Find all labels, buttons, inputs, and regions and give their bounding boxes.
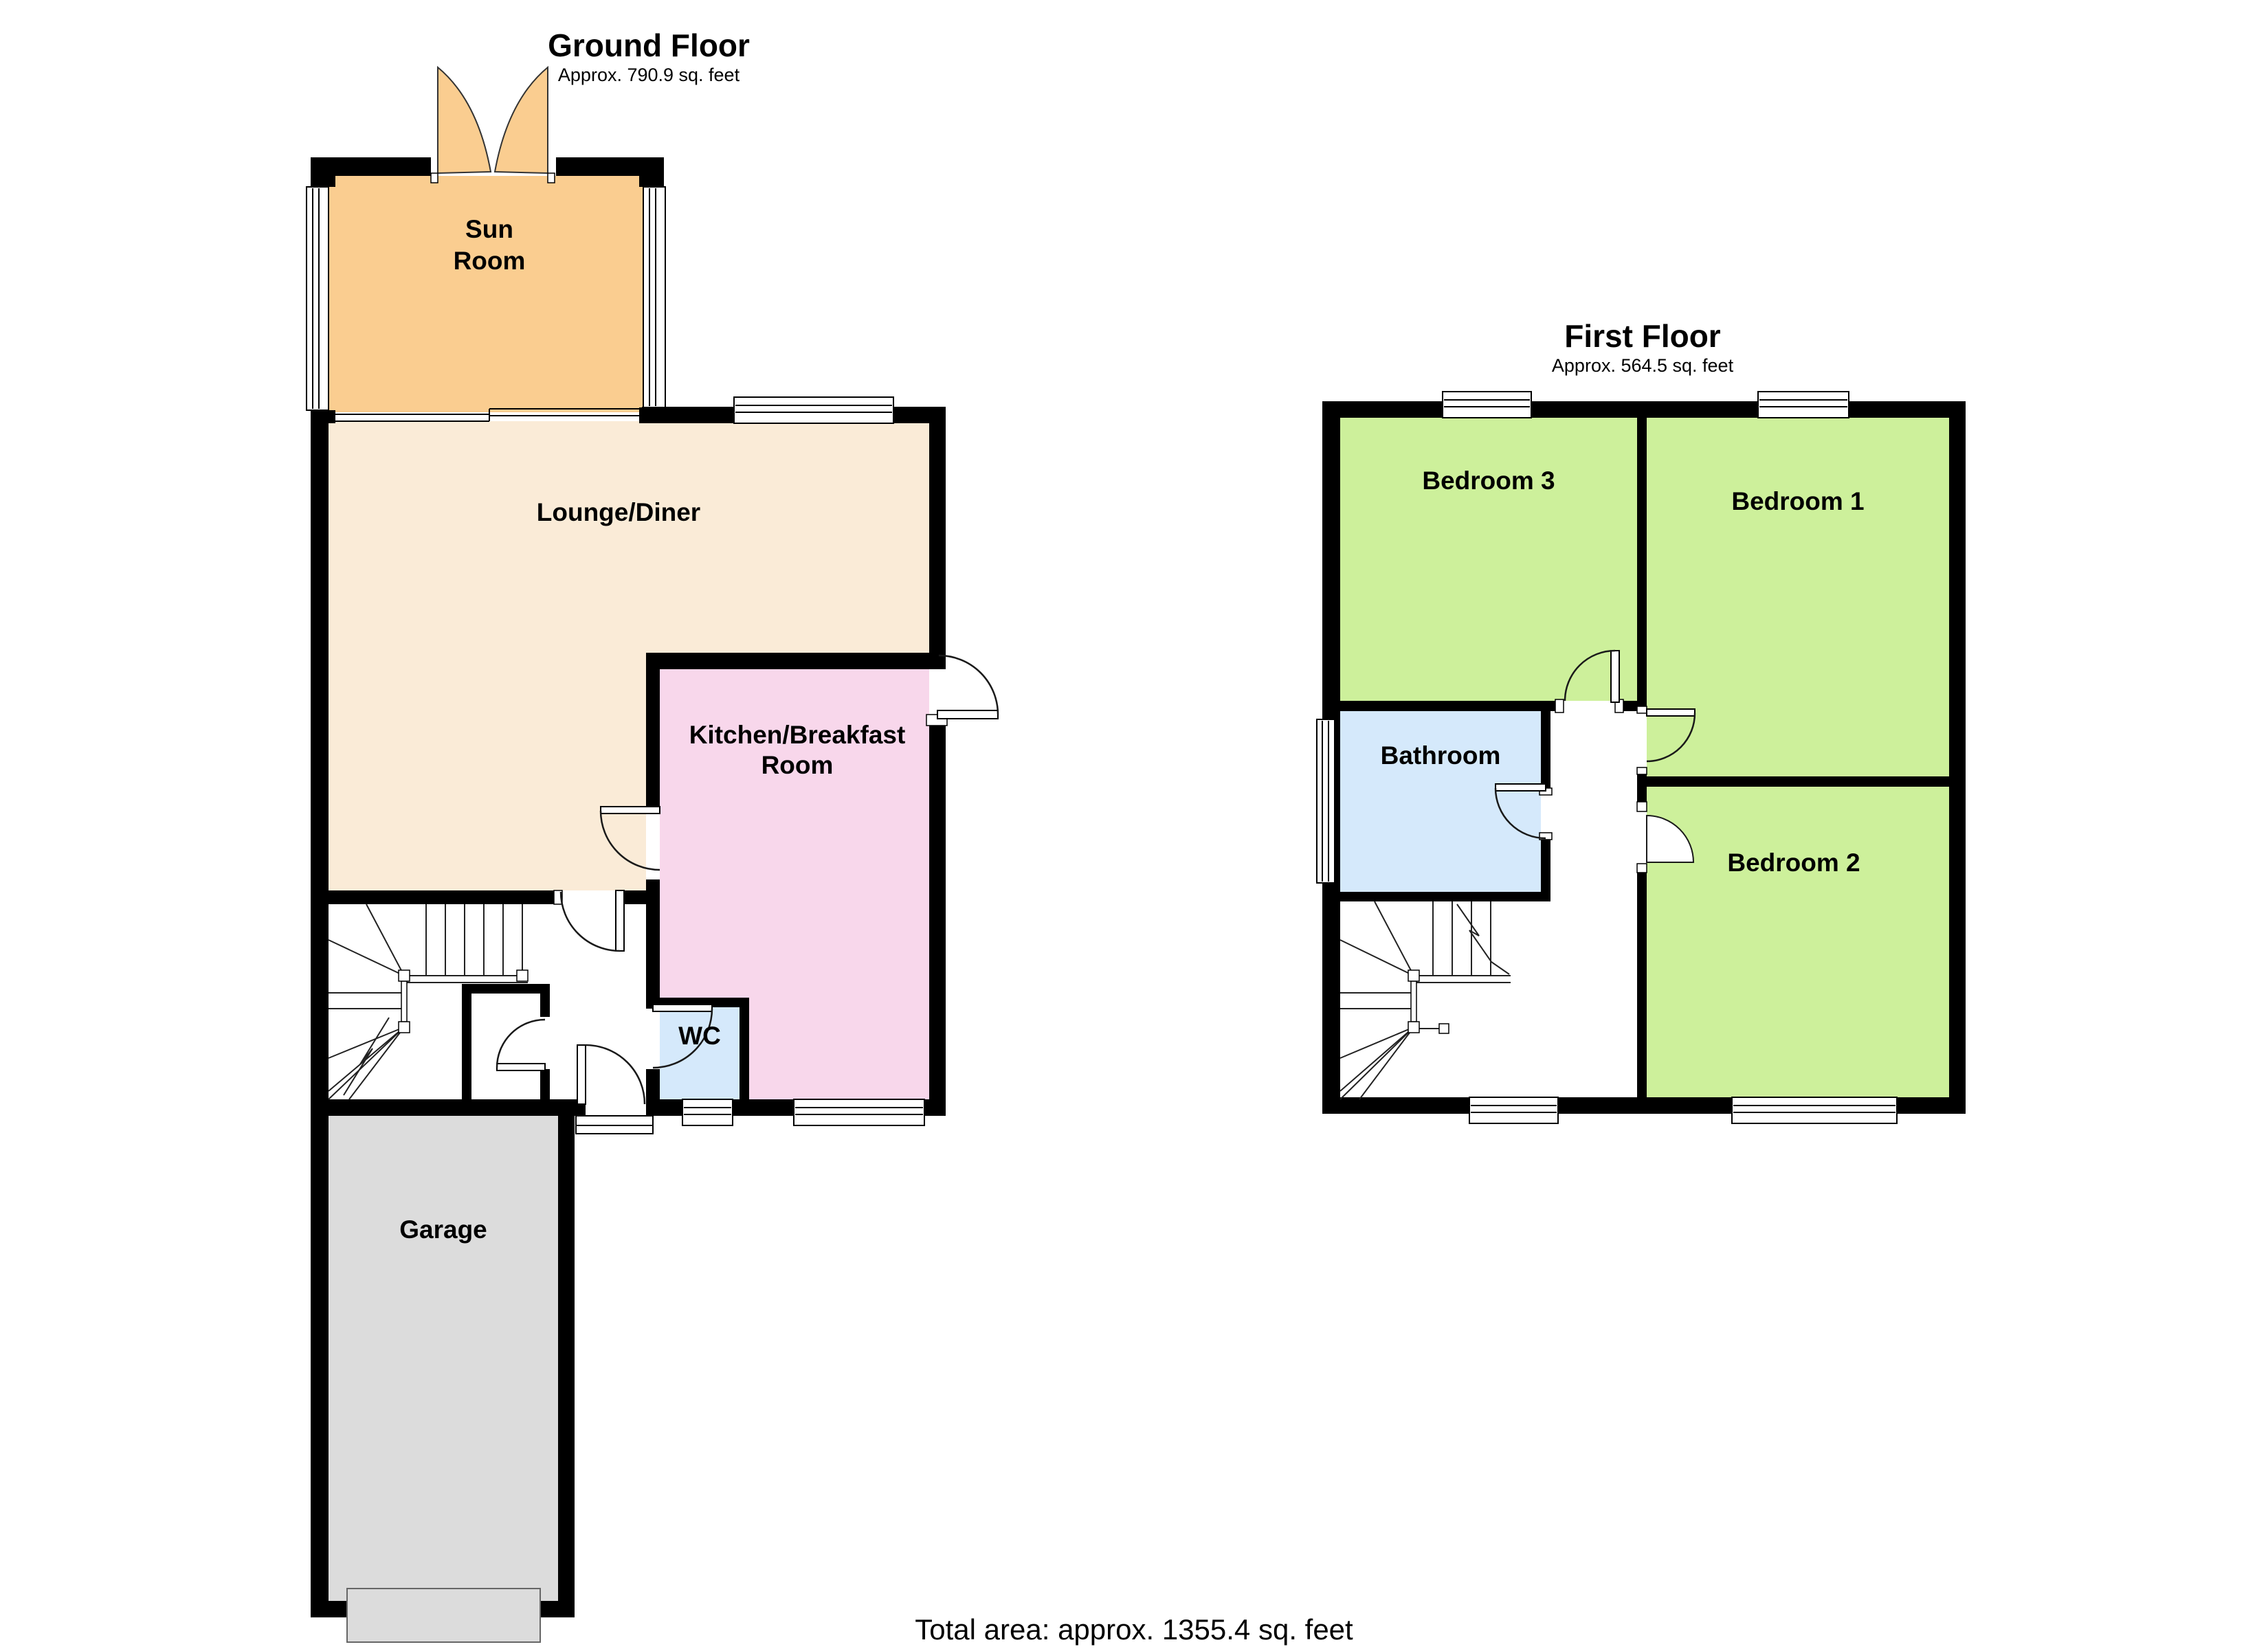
room-bedroom-2-area xyxy=(1647,787,1949,1097)
ground-floor: Ground Floor Approx. 790.9 sq. feet xyxy=(307,27,998,1642)
label-sun-room-line1: Sun xyxy=(465,215,513,243)
staircase-first xyxy=(1340,901,1511,1099)
window-landing-bottom xyxy=(1469,1097,1558,1123)
label-kitchen-line1: Kitchen/Breakfast xyxy=(689,721,906,749)
room-bedroom-1-area xyxy=(1647,418,1949,776)
door-front-entrance xyxy=(576,1045,653,1134)
first-floor-area: Approx. 564.5 sq. feet xyxy=(1552,355,1734,376)
room-sun-room-area xyxy=(329,176,643,412)
window-kitchen-bottom xyxy=(794,1099,924,1125)
garage-door xyxy=(347,1589,540,1642)
window-sun-room-right xyxy=(643,187,665,407)
label-bathroom: Bathroom xyxy=(1381,741,1501,770)
label-bedroom-3: Bedroom 3 xyxy=(1422,467,1555,495)
window-bedroom-2-bottom xyxy=(1732,1097,1897,1123)
first-floor-title: First Floor xyxy=(1564,318,1721,354)
window-lounge-top xyxy=(734,397,893,423)
label-wc: WC xyxy=(678,1022,721,1050)
room-bedroom-3-area xyxy=(1340,418,1637,701)
door-lounge-hall xyxy=(554,890,624,951)
label-sun-room-line2: Room xyxy=(454,247,526,275)
ground-floor-title: Ground Floor xyxy=(548,27,750,63)
ground-floor-area: Approx. 790.9 sq. feet xyxy=(558,65,740,85)
window-bathroom-left xyxy=(1317,719,1335,883)
room-bathroom-area xyxy=(1340,711,1541,892)
window-sun-room-left xyxy=(307,187,329,410)
floorplan-canvas: Ground Floor Approx. 790.9 sq. feet xyxy=(0,0,2268,1649)
first-floor-door-jambs xyxy=(1539,699,1647,873)
label-kitchen-line2: Room xyxy=(761,751,834,779)
label-bedroom-1: Bedroom 1 xyxy=(1731,487,1864,515)
total-area-text: Total area: approx. 1355.4 sq. feet xyxy=(915,1613,1353,1646)
window-bedroom-1-top xyxy=(1758,392,1849,418)
window-bedroom-3-top xyxy=(1443,392,1531,418)
window-wc-bottom xyxy=(682,1099,733,1125)
room-garage-area xyxy=(329,1116,558,1601)
door-closet xyxy=(497,1020,545,1070)
label-bedroom-2: Bedroom 2 xyxy=(1727,849,1860,877)
label-lounge-diner: Lounge/Diner xyxy=(537,498,700,526)
first-floor: First Floor Approx. 564.5 sq. feet xyxy=(1317,318,1966,1123)
label-garage: Garage xyxy=(399,1215,487,1244)
door-sun-room-double xyxy=(431,67,555,183)
